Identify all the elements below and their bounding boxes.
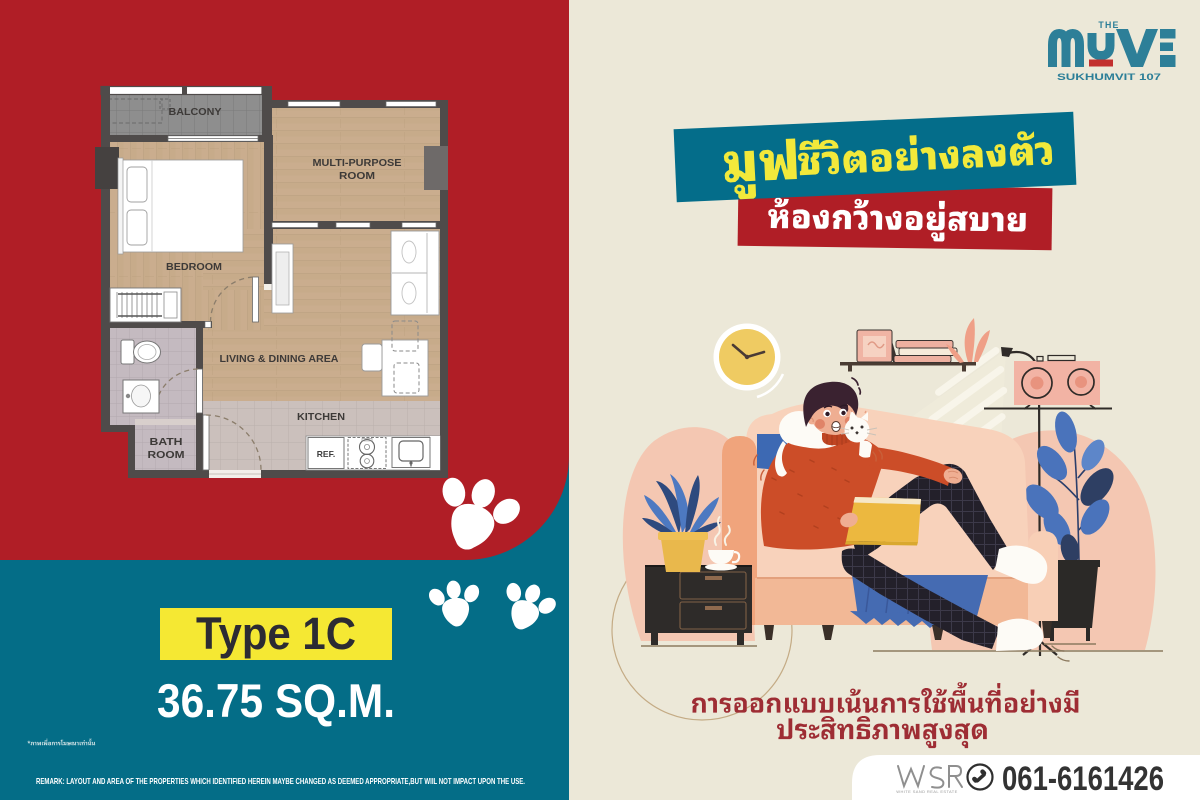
svg-text:REMARK: LAYOUT AND AREA OF THE: REMARK: LAYOUT AND AREA OF THE PROPERTIE…: [36, 777, 525, 786]
svg-text:Type 1C: Type 1C: [196, 608, 356, 659]
svg-text:BATH: BATH: [150, 437, 183, 448]
svg-text:ROOM: ROOM: [148, 450, 185, 461]
svg-text:BEDROOM: BEDROOM: [166, 261, 222, 273]
svg-text:061-6161426: 061-6161426: [1002, 760, 1164, 798]
svg-text:MULTI-PURPOSE: MULTI-PURPOSE: [313, 157, 402, 169]
svg-text:36.75 SQ.M.: 36.75 SQ.M.: [157, 674, 395, 727]
svg-text:REF.: REF.: [317, 449, 335, 459]
svg-text:WHITE SAND REAL ESTATE: WHITE SAND REAL ESTATE: [896, 789, 957, 794]
svg-text:THE: THE: [1098, 20, 1119, 30]
svg-text:LIVING & DINING AREA: LIVING & DINING AREA: [220, 353, 339, 365]
svg-text:BALCONY: BALCONY: [169, 106, 222, 118]
svg-text:SUKHUMVIT 107: SUKHUMVIT 107: [1057, 72, 1161, 82]
svg-text:KITCHEN: KITCHEN: [297, 411, 345, 423]
svg-text:ROOM: ROOM: [339, 170, 375, 182]
